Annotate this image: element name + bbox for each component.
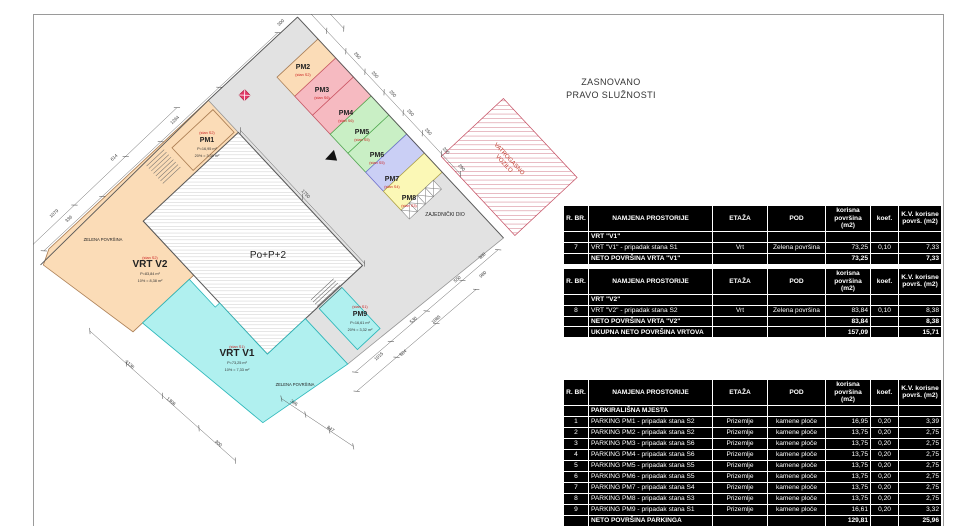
dimension-tick xyxy=(352,369,358,375)
table-header-cell: POD xyxy=(768,206,826,232)
table-row: PARKIRALIŠNA MJESTA xyxy=(564,405,942,416)
table-cell: 0,20 xyxy=(871,482,899,493)
table-cell: 3,39 xyxy=(899,416,942,427)
table-cell xyxy=(564,294,589,305)
table-cell: 2,75 xyxy=(899,438,942,449)
table-cell: 1 xyxy=(564,416,589,427)
area-value: P=16,61 m² xyxy=(350,321,370,325)
table-cell: Prizemlje xyxy=(713,504,768,515)
easement-title: ZASNOVANO PRAVO SLUŽNOSTI xyxy=(536,76,686,102)
table-cell: PARKING PM2 - pripadak stana S2 xyxy=(589,427,713,438)
area-label: ZELENA POVRŠINA xyxy=(84,237,123,242)
table-cell: 13,75 xyxy=(826,482,871,493)
table-cell: 0,20 xyxy=(871,427,899,438)
area-value: 20% = 3,39 m² xyxy=(195,154,221,158)
table-header-cell: K.V. korisne površ. (m2) xyxy=(899,269,942,295)
stan-sublabel: (stan S5) xyxy=(354,138,370,142)
table-cell: kamene ploče xyxy=(768,493,826,504)
table-cell: PARKING PM3 - pripadak stana S6 xyxy=(589,438,713,449)
area-label: PM7 xyxy=(385,176,400,183)
table-cell: 0,20 xyxy=(871,471,899,482)
table-cell xyxy=(713,405,768,416)
table-gardens-total: UKUPNA NETO POVRŠINA VRTOVA157,0915,71 xyxy=(563,326,942,338)
table-cell: 2,75 xyxy=(899,449,942,460)
table-cell xyxy=(768,515,826,526)
area-value: 10% = 8,38 m² xyxy=(138,279,164,283)
table-row: 9PARKING PM9 - pripadak stana S1Prizemlj… xyxy=(564,504,942,515)
dimension-label: 250 xyxy=(424,127,433,136)
table-cell xyxy=(564,515,589,526)
dimension-label: 1264 xyxy=(169,114,180,125)
table-cell: 0,10 xyxy=(871,242,899,253)
table-cell: 2,75 xyxy=(899,427,942,438)
table-header-cell: NAMJENA PROSTORIJE xyxy=(589,380,713,406)
table-row: 8PARKING PM8 - pripadak stana S3Prizemlj… xyxy=(564,493,942,504)
table-cell: kamene ploče xyxy=(768,482,826,493)
table-cell xyxy=(564,405,589,416)
table-cell xyxy=(871,253,899,264)
dimension-label: 1015 xyxy=(373,351,384,362)
dimension-label: 250 xyxy=(388,89,397,98)
table-cell: kamene ploče xyxy=(768,460,826,471)
table-cell: 83,84 xyxy=(826,305,871,316)
table-row: 8VRT "V2" - pripadak stana S2VrtZelena p… xyxy=(564,305,942,316)
area-label: PM2 xyxy=(296,64,311,71)
dimension-tick xyxy=(354,388,360,394)
table-cell xyxy=(768,327,826,338)
table-vrt-v2: R. BR.NAMJENA PROSTORIJEETAŽAPODkorisna … xyxy=(563,268,942,328)
table-cell: kamene ploče xyxy=(768,471,826,482)
table-row: UKUPNA NETO POVRŠINA VRTOVA157,0915,71 xyxy=(564,327,942,338)
area-label: PM3 xyxy=(315,87,330,94)
table-cell xyxy=(899,294,942,305)
table-cell: 16,61 xyxy=(826,504,871,515)
table-cell: 7 xyxy=(564,242,589,253)
table-cell: 2,75 xyxy=(899,482,942,493)
area-label: PM5 xyxy=(355,129,370,136)
table-cell: Vrt xyxy=(713,305,768,316)
table-cell xyxy=(871,515,899,526)
table-cell xyxy=(899,405,942,416)
table-cell: Zelena površina xyxy=(768,242,826,253)
table-cell: 2,75 xyxy=(899,493,942,504)
table-cell: 8 xyxy=(564,493,589,504)
dimension-tick xyxy=(495,247,501,253)
table-cell: VRT "V1" xyxy=(589,231,713,242)
dimension-label: 250 xyxy=(406,108,415,117)
table-cell: VRT "V1" - pripadak stana S1 xyxy=(589,242,713,253)
table-cell xyxy=(768,253,826,264)
rotated-plan-group: 5502502502502502502502905305503001264336… xyxy=(33,14,578,526)
table-header-cell: korisna površina (m2) xyxy=(826,380,871,406)
area-label: ZELENA POVRŠINA xyxy=(276,382,315,387)
table-cell xyxy=(871,405,899,416)
table-cell: UKUPNA NETO POVRŠINA VRTOVA xyxy=(589,327,713,338)
dimension-tick xyxy=(388,338,394,344)
table-cell: 13,75 xyxy=(826,471,871,482)
table-header-row: R. BR.NAMJENA PROSTORIJEETAŽAPODkorisna … xyxy=(564,269,942,295)
table-cell: Zelena površina xyxy=(768,305,826,316)
dimension-label: 300 xyxy=(276,18,285,27)
dimension-label: 847 xyxy=(326,425,336,434)
table-row: 4PARKING PM4 - pripadak stana S6Prizemlj… xyxy=(564,449,942,460)
table-parking: R. BR.NAMJENA PROSTORIJEETAŽAPODkorisna … xyxy=(563,379,942,526)
table-cell: 0,20 xyxy=(871,460,899,471)
dimension-label: 530 xyxy=(409,315,418,324)
table-cell: 2 xyxy=(564,427,589,438)
table-cell: 8,38 xyxy=(899,305,942,316)
area-value: P=16,95 m² xyxy=(197,147,217,151)
stan-sublabel: (stan S2) xyxy=(295,73,311,77)
stan-sublabel: (stan S1) xyxy=(352,305,368,309)
table-cell xyxy=(713,294,768,305)
table-cell: 0,20 xyxy=(871,504,899,515)
table-cell: 0,20 xyxy=(871,438,899,449)
stan-sublabel: (stan S5) xyxy=(369,161,385,165)
stan-sublabel: (stan S6) xyxy=(338,119,354,123)
stan-sublabel: (stan S6) xyxy=(314,96,330,100)
table-cell: 3,32 xyxy=(899,504,942,515)
area-label: Po+P+2 xyxy=(250,250,287,261)
table-cell: 13,75 xyxy=(826,449,871,460)
dimension-label: 300 xyxy=(214,439,223,448)
table-cell xyxy=(826,231,871,242)
table-header-cell: POD xyxy=(768,380,826,406)
stan-sublabel: (stan S4) xyxy=(384,185,400,189)
table-cell xyxy=(899,231,942,242)
table-header-cell: koef. xyxy=(871,380,899,406)
table-cell xyxy=(564,231,589,242)
table-header-cell: NAMJENA PROSTORIJE xyxy=(589,269,713,295)
table-row: 1PARKING PM1 - pripadak stana S2Prizemlj… xyxy=(564,416,942,427)
table-row: 7VRT "V1" - pripadak stana S1VrtZelena p… xyxy=(564,242,942,253)
dimension-tick xyxy=(350,443,356,449)
table-cell: 5 xyxy=(564,460,589,471)
table-cell: 9 xyxy=(564,504,589,515)
site-plan: 5502502502502502502502905305503001264336… xyxy=(33,14,578,526)
table-header-cell: korisna površina (m2) xyxy=(826,206,871,232)
area-label: PM6 xyxy=(370,152,385,159)
easement-title-line1: ZASNOVANO xyxy=(536,76,686,89)
table-cell: 129,81 xyxy=(826,515,871,526)
table-cell: Vrt xyxy=(713,242,768,253)
table-cell: VRT "V2" xyxy=(589,294,713,305)
table-row: VRT "V2" xyxy=(564,294,942,305)
table-cell: 6 xyxy=(564,471,589,482)
table-cell: VRT "V2" - pripadak stana S2 xyxy=(589,305,713,316)
table-cell xyxy=(826,294,871,305)
table-cell: PARKING PM1 - pripadak stana S2 xyxy=(589,416,713,427)
area-label: PM4 xyxy=(339,110,354,117)
table-cell: NETO POVRŠINA PARKINGA xyxy=(589,515,713,526)
table-cell: PARKING PM6 - pripadak stana S5 xyxy=(589,471,713,482)
table-cell: PARKING PM7 - pripadak stana S4 xyxy=(589,482,713,493)
dimension-label: 386 xyxy=(289,398,299,407)
table-cell: 0,20 xyxy=(871,416,899,427)
table-cell: Prizemlje xyxy=(713,460,768,471)
dimension-label: 1306 xyxy=(166,396,177,407)
area-label: VRT V2 xyxy=(132,259,167,270)
table-header-cell: R. BR. xyxy=(564,206,589,232)
table-cell: Prizemlje xyxy=(713,471,768,482)
table-row: 6PARKING PM6 - pripadak stana S5Prizemlj… xyxy=(564,471,942,482)
table-cell xyxy=(768,405,826,416)
table-row: 5PARKING PM5 - pripadak stana S5Prizemlj… xyxy=(564,460,942,471)
easement-title-line2: PRAVO SLUŽNOSTI xyxy=(536,89,686,102)
table-row: 7PARKING PM7 - pripadak stana S4Prizemlj… xyxy=(564,482,942,493)
area-label: VRT V1 xyxy=(219,348,254,359)
table-cell: kamene ploče xyxy=(768,449,826,460)
table-cell: PARKIRALIŠNA MJESTA xyxy=(589,405,713,416)
table-header-cell: koef. xyxy=(871,269,899,295)
area-value: P=83,84 m² xyxy=(140,272,160,276)
table-cell: 2,75 xyxy=(899,460,942,471)
dimension-label: 1079 xyxy=(49,208,60,219)
dimension-label: 504 xyxy=(398,348,407,357)
table-cell: kamene ploče xyxy=(768,504,826,515)
table-cell: 0,10 xyxy=(871,305,899,316)
area-label: ZAJEDNIČKI DIO xyxy=(425,211,465,218)
area-label: PM1 xyxy=(200,137,215,144)
table-header-row: R. BR.NAMJENA PROSTORIJEETAŽAPODkorisna … xyxy=(564,380,942,406)
dimension-label: 614 xyxy=(109,153,118,162)
stan-sublabel: (stan S3) xyxy=(401,204,417,208)
table-cell: 7,33 xyxy=(899,242,942,253)
table-cell: 2,75 xyxy=(899,471,942,482)
table-row: 3PARKING PM3 - pripadak stana S6Prizemlj… xyxy=(564,438,942,449)
table-cell: Prizemlje xyxy=(713,493,768,504)
table-cell: kamene ploče xyxy=(768,427,826,438)
table-cell: 3 xyxy=(564,438,589,449)
table-header-cell: ETAŽA xyxy=(713,380,768,406)
table-cell: 7 xyxy=(564,482,589,493)
table-cell: 8 xyxy=(564,305,589,316)
table-cell: 15,71 xyxy=(899,327,942,338)
table-cell: 157,09 xyxy=(826,327,871,338)
table-cell: 13,75 xyxy=(826,438,871,449)
table-row: 2PARKING PM2 - pripadak stana S2Prizemlj… xyxy=(564,427,942,438)
table-cell: kamene ploče xyxy=(768,416,826,427)
table-cell: Prizemlje xyxy=(713,438,768,449)
table-cell: 73,25 xyxy=(826,253,871,264)
table-cell xyxy=(768,294,826,305)
area-label: PM9 xyxy=(353,311,368,318)
table-header-cell: korisna površina (m2) xyxy=(826,269,871,295)
table-cell: kamene ploče xyxy=(768,438,826,449)
table-cell: 7,33 xyxy=(899,253,942,264)
dimension-label: 250 xyxy=(353,51,362,60)
table-cell: PARKING PM4 - pripadak stana S6 xyxy=(589,449,713,460)
table-cell: 4 xyxy=(564,449,589,460)
table-cell: Prizemlje xyxy=(713,427,768,438)
dimension-tick xyxy=(424,308,430,314)
table-cell: 13,75 xyxy=(826,427,871,438)
table-cell: PARKING PM9 - pripadak stana S1 xyxy=(589,504,713,515)
table-cell xyxy=(713,253,768,264)
table-cell: 25,96 xyxy=(899,515,942,526)
table-header-cell: R. BR. xyxy=(564,380,589,406)
table-cell: 0,20 xyxy=(871,449,899,460)
dimension-label: 980 xyxy=(478,270,487,279)
sheet: 5502502502502502502502905305503001264336… xyxy=(0,0,960,526)
dimension-label: 1085 xyxy=(430,314,441,325)
table-cell xyxy=(826,405,871,416)
table-cell xyxy=(713,515,768,526)
table-header-cell: K.V. korisne površ. (m2) xyxy=(899,206,942,232)
dimension-tick xyxy=(302,411,308,417)
table-vrt-v1: R. BR.NAMJENA PROSTORIJEETAŽAPODkorisna … xyxy=(563,205,942,265)
table-cell xyxy=(713,231,768,242)
area-value: 10% = 7,33 m² xyxy=(225,368,251,372)
table-cell xyxy=(871,327,899,338)
table-cell: 0,20 xyxy=(871,493,899,504)
table-cell xyxy=(768,231,826,242)
table-header-cell: K.V. korisne površ. (m2) xyxy=(899,380,942,406)
table-cell: 16,95 xyxy=(826,416,871,427)
area-label: PM8 xyxy=(402,195,417,202)
table-cell xyxy=(564,253,589,264)
table-cell: 13,75 xyxy=(826,460,871,471)
table-cell: Prizemlje xyxy=(713,482,768,493)
area-value: P=73,25 m² xyxy=(227,361,247,365)
table-cell xyxy=(713,327,768,338)
table-cell: Prizemlje xyxy=(713,449,768,460)
table-header-cell: R. BR. xyxy=(564,269,589,295)
table-header-cell: POD xyxy=(768,269,826,295)
table-cell: 73,25 xyxy=(826,242,871,253)
table-cell: 13,75 xyxy=(826,493,871,504)
table-cell: PARKING PM5 - pripadak stana S5 xyxy=(589,460,713,471)
area-value: 20% = 3,32 m² xyxy=(348,328,374,332)
stan-sublabel: (stan S2) xyxy=(199,131,215,135)
table-header-cell: ETAŽA xyxy=(713,269,768,295)
table-cell xyxy=(871,294,899,305)
table-header-cell: ETAŽA xyxy=(713,206,768,232)
table-cell xyxy=(871,231,899,242)
table-header-row: R. BR.NAMJENA PROSTORIJEETAŽAPODkorisna … xyxy=(564,206,942,232)
table-header-cell: NAMJENA PROSTORIJE xyxy=(589,206,713,232)
dimension-tick xyxy=(473,286,479,292)
table-row: NETO POVRŠINA VRTA "V1"73,257,33 xyxy=(564,253,942,264)
table-row: VRT "V1" xyxy=(564,231,942,242)
table-cell: PARKING PM8 - pripadak stana S3 xyxy=(589,493,713,504)
dimension-label: 250 xyxy=(371,70,380,79)
table-cell xyxy=(564,327,589,338)
table-cell: Prizemlje xyxy=(713,416,768,427)
dimension-label: 336 xyxy=(64,214,73,223)
table-row: NETO POVRŠINA PARKINGA129,8125,96 xyxy=(564,515,942,526)
table-cell: NETO POVRŠINA VRTA "V1" xyxy=(589,253,713,264)
table-header-cell: koef. xyxy=(871,206,899,232)
